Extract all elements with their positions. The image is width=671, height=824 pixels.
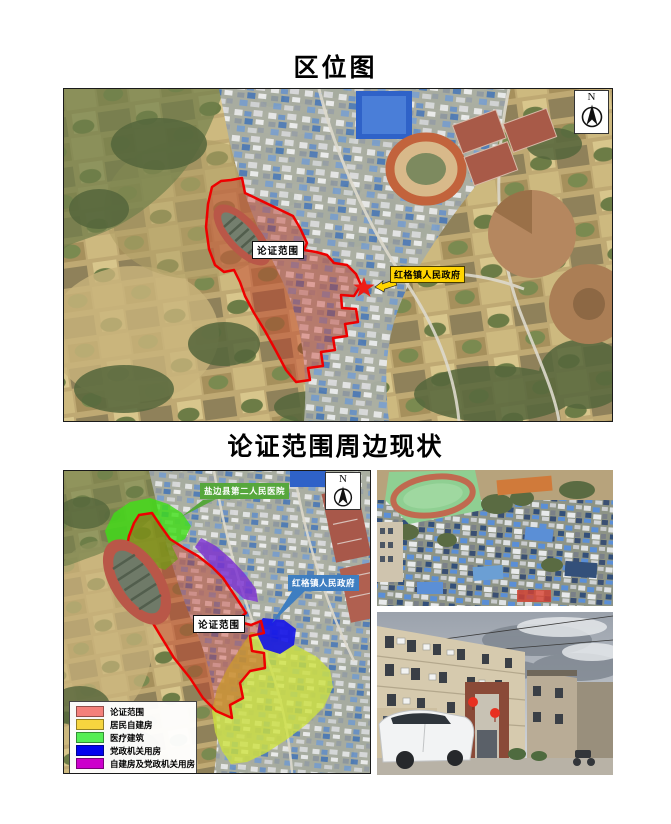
legend-item: 医疗建筑 xyxy=(70,731,196,744)
legend-swatch xyxy=(76,706,104,717)
suv xyxy=(379,710,474,769)
location-map-title: 区位图 xyxy=(0,48,671,84)
legend-item: 党政机关用房 xyxy=(70,744,196,757)
legend-swatch xyxy=(76,745,104,756)
legend-item: 论证范围 xyxy=(70,705,196,718)
north-compass: N xyxy=(574,90,609,134)
street-photo xyxy=(377,612,613,775)
aerial-photo-art xyxy=(377,470,613,606)
compass-needle-icon xyxy=(332,485,354,508)
compass-n-label: N xyxy=(339,473,347,485)
north-compass: N xyxy=(325,472,361,510)
legend-swatch xyxy=(76,719,104,730)
legend-swatch xyxy=(76,732,104,743)
legend-label: 居民自建房 xyxy=(110,719,153,731)
hospital-callout: 盐边县第二人民医院 xyxy=(200,483,289,499)
location-map: N 论证范围 红格镇人民政府 xyxy=(63,88,613,422)
legend-item: 居民自建房 xyxy=(70,718,196,731)
surroundings-title: 论证范围周边现状 xyxy=(0,427,671,463)
location-map-art xyxy=(64,89,612,421)
compass-needle-icon xyxy=(580,103,604,129)
surroundings-map: N 盐边县第二人民医院 红格镇人民政府 论证范围 论证范围 居民自建房 医疗建筑 xyxy=(63,470,371,774)
government-callout: 红格镇人民政府 xyxy=(390,266,465,283)
scope-area-label: 论证范围 xyxy=(193,615,245,633)
aerial-photo xyxy=(377,470,613,606)
legend-item: 自建房及党政机关用房 xyxy=(70,757,196,770)
scope-area-label: 论证范围 xyxy=(252,241,304,259)
legend-label: 自建房及党政机关用房 xyxy=(110,758,195,770)
legend-label: 医疗建筑 xyxy=(110,732,144,744)
legend-swatch xyxy=(76,758,104,769)
report-page: 区位图 xyxy=(0,0,671,824)
street-photo-art xyxy=(377,612,613,775)
legend-label: 党政机关用房 xyxy=(110,745,161,757)
map-legend: 论证范围 居民自建房 医疗建筑 党政机关用房 自建房及党政机关用房 xyxy=(69,701,197,774)
legend-label: 论证范围 xyxy=(110,706,144,718)
compass-n-label: N xyxy=(588,91,596,103)
government-callout: 红格镇人民政府 xyxy=(288,575,359,591)
